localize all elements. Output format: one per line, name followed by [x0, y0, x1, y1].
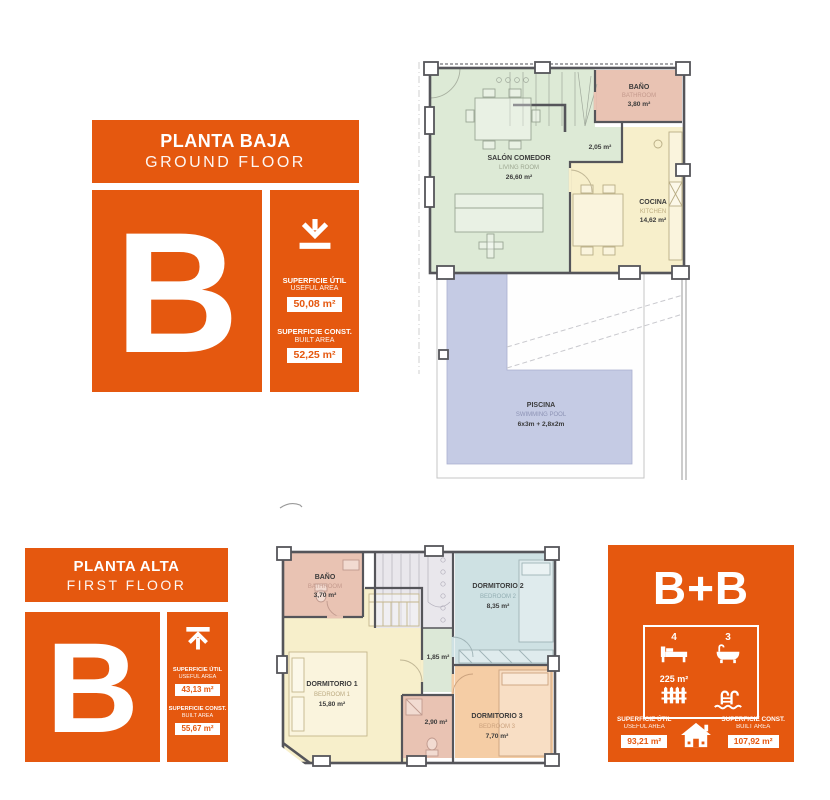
kitchen-label: COCINA KITCHEN 14,62 m² [639, 199, 667, 224]
features-box: 4 3 225 m² [643, 625, 759, 719]
ground-floor-plan: PISCINA SWIMMING POOL 6x3m + 2,8x2m [415, 52, 715, 492]
built-area-value: 52,25 m² [287, 348, 341, 363]
ground-title-en: GROUND FLOOR [145, 154, 306, 172]
ground-floor-down-arrow-icon [296, 218, 334, 252]
pool-icon [713, 688, 743, 712]
ensuite-area-label: 2,90 m² [425, 719, 449, 726]
first-useful-value: 43,13 m² [175, 684, 219, 696]
summary-built-label-en: BUILT AREA [736, 724, 770, 732]
summary-useful-label-es: SUPERFICIE ÚTIL [617, 716, 671, 724]
svg-text:LIVING ROOM: LIVING ROOM [499, 165, 539, 171]
first-title-en: FIRST FLOOR [67, 577, 187, 593]
bathtub-icon [714, 643, 742, 664]
svg-text:DORMITORIO 3: DORMITORIO 3 [471, 713, 522, 720]
svg-text:DORMITORIO 1: DORMITORIO 1 [306, 681, 357, 688]
summary-built-area: SUPERFICIE CONST. BUILT AREA 107,92 m² [721, 716, 785, 748]
first-title-es: PLANTA ALTA [73, 558, 179, 575]
ground-title-es: PLANTA BAJA [160, 131, 291, 152]
ground-letter-tile: B [92, 190, 262, 392]
fence-icon [660, 685, 688, 705]
svg-text:KITCHEN: KITCHEN [640, 209, 666, 215]
unit-letter: B [115, 207, 239, 379]
summary-areas: SUPERFICIE ÚTIL USEFUL AREA 93,21 m² SUP… [608, 715, 794, 749]
svg-text:BATHROOM: BATHROOM [622, 93, 656, 99]
plot-feature: 225 m² [647, 675, 701, 712]
svg-text:BEDROOM 3: BEDROOM 3 [479, 724, 516, 730]
bed-icon [659, 643, 689, 664]
bathrooms-count: 3 [725, 632, 731, 643]
brochure-page: PLANTA BAJA GROUND FLOOR B SUPERFICIE ÚT… [0, 0, 830, 800]
summary-useful-label-en: USEFUL AREA [624, 724, 665, 732]
useful-area-label-en: USEFUL AREA [291, 285, 339, 294]
svg-text:7,70 m²: 7,70 m² [486, 733, 510, 740]
summary-useful-value: 93,21 m² [621, 735, 667, 748]
house-icon [680, 721, 712, 749]
hall1f-area-label: 1,85 m² [427, 654, 451, 661]
svg-text:15,80 m²: 15,80 m² [319, 701, 346, 708]
svg-text:BAÑO: BAÑO [629, 82, 650, 91]
built-area-label-es: SUPERFICIE CONST. [277, 327, 352, 336]
first-floor-plan: BAÑO BATHROOM 3,70 m² DORMITORIO 2 BEDRO… [265, 542, 565, 792]
first-useful-label-es: SUPERFICIE ÚTIL [173, 667, 222, 674]
bedrooms-feature: 4 [647, 632, 701, 671]
useful-area-value: 50,08 m² [287, 297, 341, 312]
first-built-value: 55,67 m² [175, 723, 219, 735]
first-letter-tile: B [25, 612, 160, 762]
first-useful-label-en: USEFUL AREA [179, 674, 217, 681]
summary-useful-area: SUPERFICIE ÚTIL USEFUL AREA 93,21 m² [617, 716, 671, 748]
divider-mark [278, 498, 304, 512]
svg-text:SALÓN COMEDOR: SALÓN COMEDOR [488, 153, 551, 162]
summary-built-value: 107,92 m² [728, 735, 779, 748]
pool-feature [701, 675, 755, 712]
first-built-label-en: BUILT AREA [182, 713, 213, 720]
svg-text:PISCINA: PISCINA [527, 402, 555, 409]
svg-text:14,62 m²: 14,62 m² [640, 217, 667, 224]
first-floor-header: PLANTA ALTA FIRST FLOOR [25, 548, 228, 602]
plot-area-value: 225 m² [660, 675, 689, 685]
built-area-label-en: BUILT AREA [295, 337, 335, 346]
svg-text:3,70 m²: 3,70 m² [314, 592, 338, 599]
svg-text:COCINA: COCINA [639, 199, 667, 206]
svg-text:DORMITORIO 2: DORMITORIO 2 [472, 583, 523, 590]
svg-text:SWIMMING POOL: SWIMMING POOL [516, 412, 567, 418]
svg-text:3,80 m²: 3,80 m² [628, 101, 652, 108]
hall-area-label: 2,05 m² [589, 144, 613, 151]
summary-panel: B+B 4 3 225 m² [608, 545, 794, 762]
summary-built-label-es: SUPERFICIE CONST. [721, 716, 785, 724]
svg-text:6x3m + 2,8x2m: 6x3m + 2,8x2m [518, 421, 565, 428]
svg-text:BEDROOM 1: BEDROOM 1 [314, 692, 351, 698]
svg-text:BATHROOM: BATHROOM [308, 584, 342, 590]
svg-text:BEDROOM 2: BEDROOM 2 [480, 594, 517, 600]
ground-area-tile: SUPERFICIE ÚTIL USEFUL AREA 50,08 m² SUP… [270, 190, 359, 392]
svg-text:8,35 m²: 8,35 m² [487, 603, 511, 610]
useful-area-label-es: SUPERFICIE ÚTIL [283, 276, 347, 285]
svg-text:26,60 m²: 26,60 m² [506, 174, 533, 181]
bathrooms-feature: 3 [701, 632, 755, 671]
svg-text:BAÑO: BAÑO [315, 572, 336, 581]
ground-floor-header: PLANTA BAJA GROUND FLOOR [92, 120, 359, 183]
unit-type-title: B+B [608, 561, 794, 615]
first-floor-up-arrow-icon [184, 626, 212, 652]
first-built-label-es: SUPERFICIE CONST. [169, 706, 227, 713]
first-area-tile: SUPERFICIE ÚTIL USEFUL AREA 43,13 m² SUP… [167, 612, 228, 762]
unit-letter-first: B [46, 625, 138, 753]
bedrooms-count: 4 [671, 632, 677, 643]
